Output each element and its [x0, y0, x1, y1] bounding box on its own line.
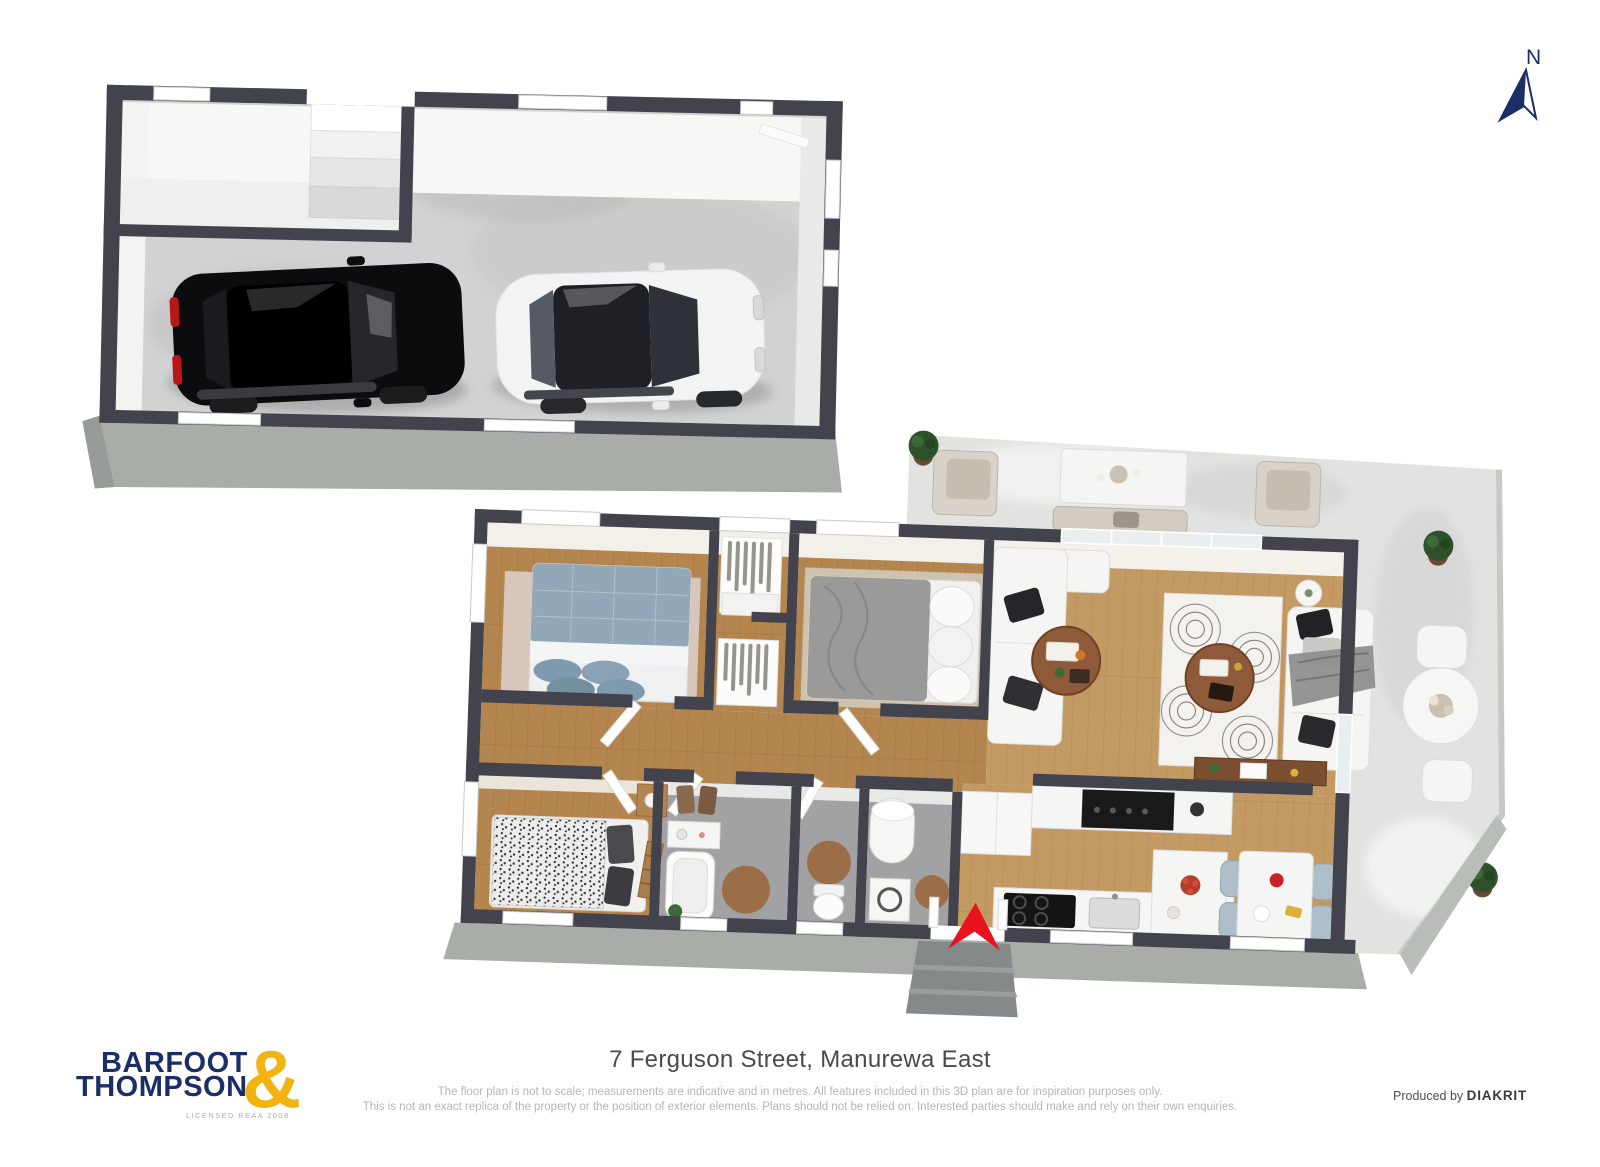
property-address: 7 Ferguson Street, Manurewa East: [0, 1046, 1600, 1074]
north-label: N: [1526, 46, 1541, 69]
hot-water-cylinder: [869, 798, 915, 863]
floor-plan-render: [0, 0, 1600, 1167]
garage-stairs: [309, 102, 410, 219]
toilet: [813, 893, 844, 920]
vanity: [667, 821, 720, 849]
floor-plan-page: N BARFOOT THOMPSON & LICENSED REAA 2008 …: [0, 0, 1600, 1167]
sofa-east: [1283, 606, 1379, 771]
produced-by-prefix: Produced by: [1393, 1089, 1463, 1103]
white-car: [494, 260, 766, 416]
coffee-table-1: [1031, 626, 1101, 696]
washing-machine: [869, 878, 910, 921]
coffee-table-2: [1184, 643, 1254, 713]
bedroom1-bed: [500, 562, 701, 706]
produced-by: Produced by DIAKRIT: [1393, 1088, 1527, 1103]
produced-by-brand: DIAKRIT: [1467, 1088, 1527, 1103]
disclaimer-line1: The floor plan is not to scale; measurem…: [0, 1086, 1600, 1098]
kitchen-island: [1151, 850, 1228, 941]
house-plan: [442, 414, 1520, 1034]
bedroom2-bed: [800, 568, 985, 712]
disclaimer-line2: This is not an exact replica of the prop…: [0, 1101, 1600, 1113]
north-indicator: N: [1492, 42, 1552, 126]
sink: [1089, 898, 1140, 930]
garage-plan: [81, 83, 851, 505]
entry-steps: [906, 940, 1020, 1017]
black-car: [168, 251, 467, 416]
